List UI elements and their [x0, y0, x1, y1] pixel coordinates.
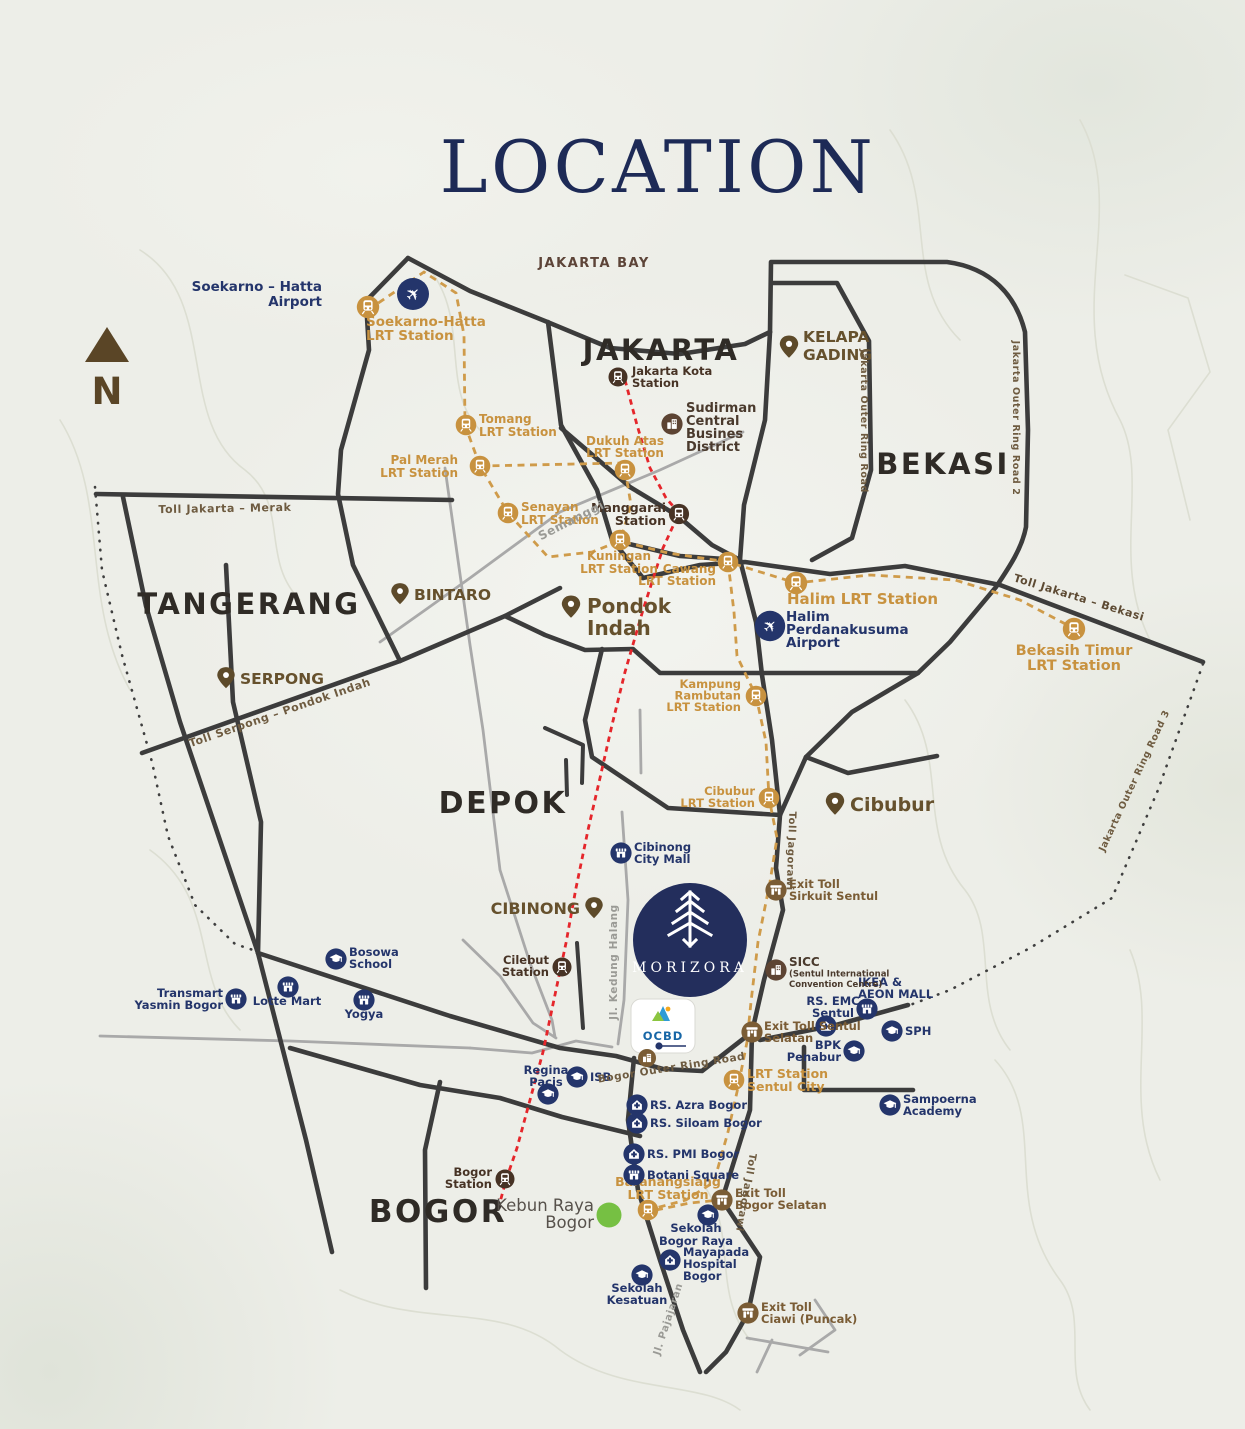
lrt-station-marker: LRT StationSentul City [724, 1066, 828, 1094]
terrain-lines [60, 120, 1210, 1410]
plane-icon [397, 278, 429, 310]
school-icon [566, 1066, 587, 1087]
region-label: BOGOR [369, 1194, 507, 1230]
mall-icon [225, 988, 246, 1009]
road-label: Jl. Kedung Halang [608, 904, 620, 1021]
marker-label: Lotte Mart [253, 994, 322, 1008]
marker-label: Ciawi (Puncak) [761, 1312, 857, 1326]
marker-label: Pondok [587, 594, 672, 618]
train-icon [1063, 618, 1085, 640]
road-label: Toll Jagorawi [784, 811, 798, 891]
page-title: LOCATION [440, 125, 876, 209]
toll-icon [765, 879, 786, 900]
marker-label: Airport [268, 294, 322, 310]
marker-label: Halim LRT Station [787, 590, 938, 608]
pin-icon [562, 596, 580, 618]
toll-icon [741, 1021, 762, 1042]
kebun-raya-label: Bogor [545, 1213, 594, 1232]
lrt-station-marker: KampungRambutanLRT Station [666, 677, 766, 714]
train-icon [608, 367, 627, 386]
marker-label: LRT Station [666, 700, 741, 714]
ocbd-building-icon [638, 1049, 656, 1067]
pin-icon [780, 336, 798, 358]
train-icon [470, 456, 491, 477]
road-label: Jakarta Outer Ring Road 2 [1010, 340, 1021, 496]
ocbd-location-dot [655, 1042, 662, 1049]
location-map-poster: ✈ [0, 0, 1245, 1429]
marker-label: Sirkuit Sentul [789, 889, 878, 903]
marker-label: LRT Station [627, 1187, 708, 1202]
airport-marker: HalimPerdanakusumaAirport [755, 609, 909, 651]
lrt-station-marker: KuninganLRT Station [580, 530, 658, 576]
school-marker: SampoernaAcademy [879, 1092, 976, 1118]
school-marker: SekolahKesatuan [607, 1264, 668, 1307]
train-icon [759, 788, 780, 809]
train-icon [610, 530, 631, 551]
marker-label: Senayan [521, 500, 579, 514]
marker-label: Station [632, 376, 679, 390]
hospital-marker: RS. PMI Bogor [623, 1143, 739, 1164]
marker-label: School [349, 957, 392, 971]
marker-label: KELAPA [803, 328, 869, 346]
marker-label: LRT Station [366, 328, 454, 344]
road-label: Jakarta Outer Ring Road 3 [1097, 708, 1173, 854]
marker-label: Cibubur [850, 794, 935, 816]
toll-icon [737, 1302, 758, 1323]
region-label: JAKARTA [581, 333, 740, 367]
map-pin-bintaro: BINTARO [391, 583, 491, 604]
mall-marker: CibinongCity Mall [610, 840, 691, 866]
marker-label: Botani Square [647, 1168, 739, 1182]
region-label: BEKASI [876, 447, 1010, 481]
marker-label: SPH [905, 1024, 931, 1038]
mall-icon [623, 1164, 644, 1185]
marker-label: Station [445, 1177, 492, 1191]
toll-marker: Exit TollBogor Selatan [711, 1186, 826, 1212]
marker-label: Station [502, 965, 549, 979]
road-label: Jakarta Outer Ring Road [858, 348, 869, 493]
marker-label: City Mall [634, 852, 690, 866]
train-icon [456, 415, 477, 436]
pin-icon [826, 793, 844, 815]
marker-label: SICC [789, 955, 820, 969]
marker-label: Sekolah [670, 1221, 721, 1235]
hospital-icon [626, 1112, 647, 1133]
marker-label: Sentul [812, 1006, 854, 1020]
train-icon [718, 552, 739, 573]
train-icon [724, 1070, 745, 1091]
morizora-logo: MORIZORA [632, 883, 748, 997]
map-pin-cibinong: CIBINONG [491, 897, 603, 918]
school-marker: SPH [881, 1020, 931, 1041]
toll-icon [711, 1189, 732, 1210]
lrt-station-marker: Pal MerahLRT Station [380, 453, 490, 480]
map-pin-pondok-indah: PondokIndah [562, 594, 672, 640]
lrt-station-marker: CibuburLRT Station [680, 784, 779, 810]
kebun-raya-circle [597, 1203, 622, 1228]
mall-icon [610, 842, 631, 863]
marker-label: LRT Station [479, 425, 557, 439]
lrt-station-marker: Bekasih TimurLRT Station [1016, 618, 1134, 674]
school-icon [843, 1040, 864, 1061]
pin-icon [585, 897, 602, 918]
hospital-icon [623, 1143, 644, 1164]
hospital-icon [659, 1249, 680, 1270]
marker-label: SERPONG [240, 670, 324, 688]
lrt-station-marker: TomangLRT Station [456, 412, 557, 439]
train-icon [498, 503, 519, 524]
marker-label: Kesatuan [607, 1293, 668, 1307]
hospital-marker: RS. Azra Bogor [626, 1094, 747, 1115]
compass-label: N [92, 370, 123, 413]
marker-label: District [686, 440, 740, 455]
marker-label: LRT Station [680, 796, 755, 810]
marker-label: Kuningan [587, 549, 651, 563]
marker-label: CIBINONG [491, 899, 580, 918]
marker-label: RS. Azra Bogor [650, 1098, 747, 1112]
morizora-name: MORIZORA [632, 960, 748, 976]
marker-label: Bogor [683, 1269, 722, 1283]
marker-label: LRT Station [586, 446, 664, 460]
marker-label: RS. Siloam Bogor [650, 1116, 762, 1130]
building-marker: SICC(Sentul InternationalConvention Cent… [765, 955, 889, 990]
map-pin-cibubur: Cibubur [826, 793, 935, 817]
markers-layer: JAKARTABEKASITANGERANGDEPOKBOGORKELAPAGA… [134, 278, 1173, 1358]
bay-label: JAKARTA BAY [537, 256, 650, 271]
marker-label: Convention Centre) [789, 980, 882, 990]
building-marker: SudirmanCentralBusinesDistrict [661, 401, 756, 455]
ocbd-name: OCBD [643, 1029, 684, 1043]
building-icon [765, 959, 786, 980]
train-station-marker: Jakarta KotaStation [608, 364, 712, 390]
marker-label: Sentul City [747, 1079, 824, 1094]
marker-label: LRT Station [1027, 658, 1121, 674]
marker-label: Indah [587, 616, 651, 640]
train-icon [638, 1200, 659, 1221]
train-icon [615, 460, 636, 481]
marker-label: Bekasih Timur [1016, 643, 1134, 659]
marker-label: (Sentul International [789, 970, 889, 980]
marker-label: Yogya [344, 1007, 384, 1021]
road-label: Toll Jakarta – Merak [158, 501, 291, 516]
train-icon [552, 957, 571, 976]
region-label: DEPOK [439, 786, 568, 821]
marker-label: Pacis [529, 1075, 563, 1089]
mall-icon [856, 998, 877, 1019]
train-icon [669, 504, 689, 524]
school-icon [879, 1094, 900, 1115]
marker-label: Selatan [764, 1031, 813, 1045]
marker-label: Yasmin Bogor [134, 998, 224, 1012]
region-label: TANGERANG [137, 587, 360, 621]
marker-label: Pal Merah [391, 453, 459, 467]
marker-label: Penabur [787, 1050, 842, 1064]
school-icon [325, 948, 346, 969]
plane-icon [755, 611, 785, 641]
map-canvas: ✈ [0, 0, 1245, 1429]
mall-marker: TransmartYasmin Bogor [134, 986, 247, 1012]
marker-label: Station [615, 513, 666, 528]
compass-north-arrow [85, 327, 129, 362]
hospital-marker: MayapadaHospitalBogor [659, 1245, 749, 1283]
marker-label: Soekarno – Hatta [192, 279, 322, 295]
train-station-marker: CilebutStation [502, 953, 572, 979]
toll-marker: Exit TollCiawi (Puncak) [737, 1300, 857, 1326]
marker-label: BINTARO [414, 586, 491, 604]
school-icon [881, 1020, 902, 1041]
marker-label: Academy [903, 1104, 962, 1118]
marker-label: Tomang [479, 412, 532, 426]
school-marker: SekolahBogor Raya [659, 1204, 733, 1248]
train-station-marker: BogorStation [445, 1165, 515, 1191]
school-marker: BosowaSchool [325, 945, 398, 971]
compass: N [85, 327, 129, 413]
marker-label: RS. PMI Bogor [647, 1147, 739, 1161]
pin-icon [391, 583, 408, 604]
kebun-raya-marker: Kebun RayaBogor [496, 1196, 621, 1232]
building-icon [661, 413, 682, 434]
ocbd-card: OCBD [631, 999, 695, 1067]
marker-label: Airport [786, 635, 840, 651]
train-icon [746, 686, 767, 707]
train-icon [495, 1169, 514, 1188]
marker-label: LRT Station [380, 466, 458, 480]
marker-label: LRT Station [638, 574, 716, 588]
